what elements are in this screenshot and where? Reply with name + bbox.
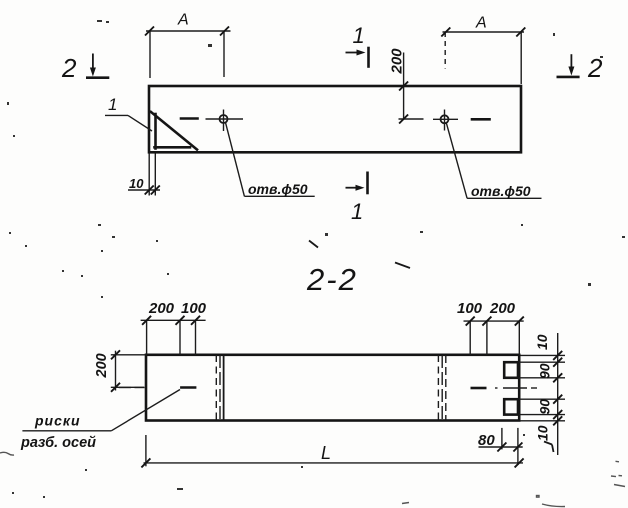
svg-text:200: 200 [489, 300, 516, 317]
svg-text:90: 90 [537, 363, 553, 379]
svg-text:1: 1 [108, 95, 117, 114]
svg-text:10: 10 [534, 334, 550, 350]
svg-text:2-2: 2-2 [306, 262, 358, 297]
svg-text:A: A [177, 12, 189, 29]
svg-text:риски: риски [34, 413, 81, 429]
svg-text:1: 1 [353, 23, 365, 48]
svg-text:200: 200 [94, 353, 110, 378]
svg-text:100: 100 [181, 300, 207, 317]
svg-text:10: 10 [535, 425, 551, 441]
svg-text:L: L [321, 443, 331, 463]
svg-text:2: 2 [61, 53, 77, 83]
svg-text:90: 90 [537, 399, 553, 415]
svg-text:отв.ϕ50: отв.ϕ50 [471, 183, 531, 199]
svg-text:100: 100 [457, 300, 483, 317]
svg-text:10: 10 [129, 176, 144, 191]
svg-text:разб. осей: разб. осей [20, 435, 96, 451]
svg-text:1: 1 [351, 199, 363, 224]
svg-text:A: A [475, 15, 487, 32]
svg-text:отв.ϕ50: отв.ϕ50 [248, 181, 308, 197]
svg-text:200: 200 [148, 300, 175, 317]
